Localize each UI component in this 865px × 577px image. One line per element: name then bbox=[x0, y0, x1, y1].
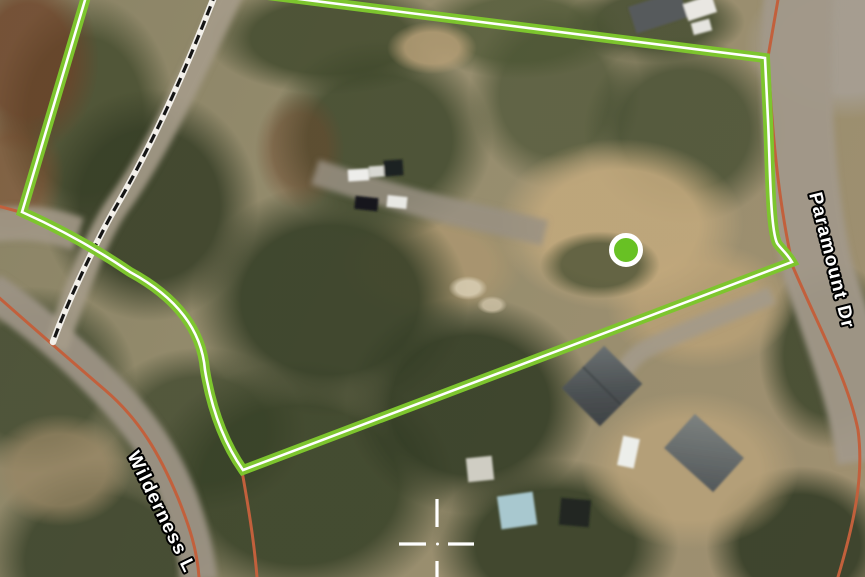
crosshair-dot bbox=[436, 543, 439, 546]
vehicles bbox=[348, 19, 713, 469]
map-viewport[interactable]: Paramount Dr Wilderness L bbox=[0, 0, 865, 577]
building-roof bbox=[628, 0, 688, 34]
map-overlay: Paramount Dr Wilderness L bbox=[0, 0, 865, 577]
tarp bbox=[497, 492, 537, 530]
vehicle bbox=[383, 159, 403, 176]
structures bbox=[348, 0, 744, 529]
vehicle bbox=[691, 19, 712, 36]
dark-object bbox=[559, 498, 591, 528]
building-roof bbox=[664, 414, 744, 492]
building-roof bbox=[683, 0, 717, 21]
vehicle bbox=[617, 436, 640, 469]
shed-roof bbox=[466, 456, 494, 483]
road-surface-lotline-track bbox=[56, 0, 235, 348]
vehicle bbox=[386, 195, 407, 209]
vehicle bbox=[369, 165, 385, 177]
road-centerline-south-spur bbox=[242, 471, 257, 577]
vehicle bbox=[348, 168, 370, 181]
crosshair bbox=[399, 499, 474, 577]
lot-line-dashed bbox=[53, 0, 216, 342]
vehicle bbox=[354, 196, 378, 211]
parcel-marker[interactable] bbox=[612, 236, 641, 265]
